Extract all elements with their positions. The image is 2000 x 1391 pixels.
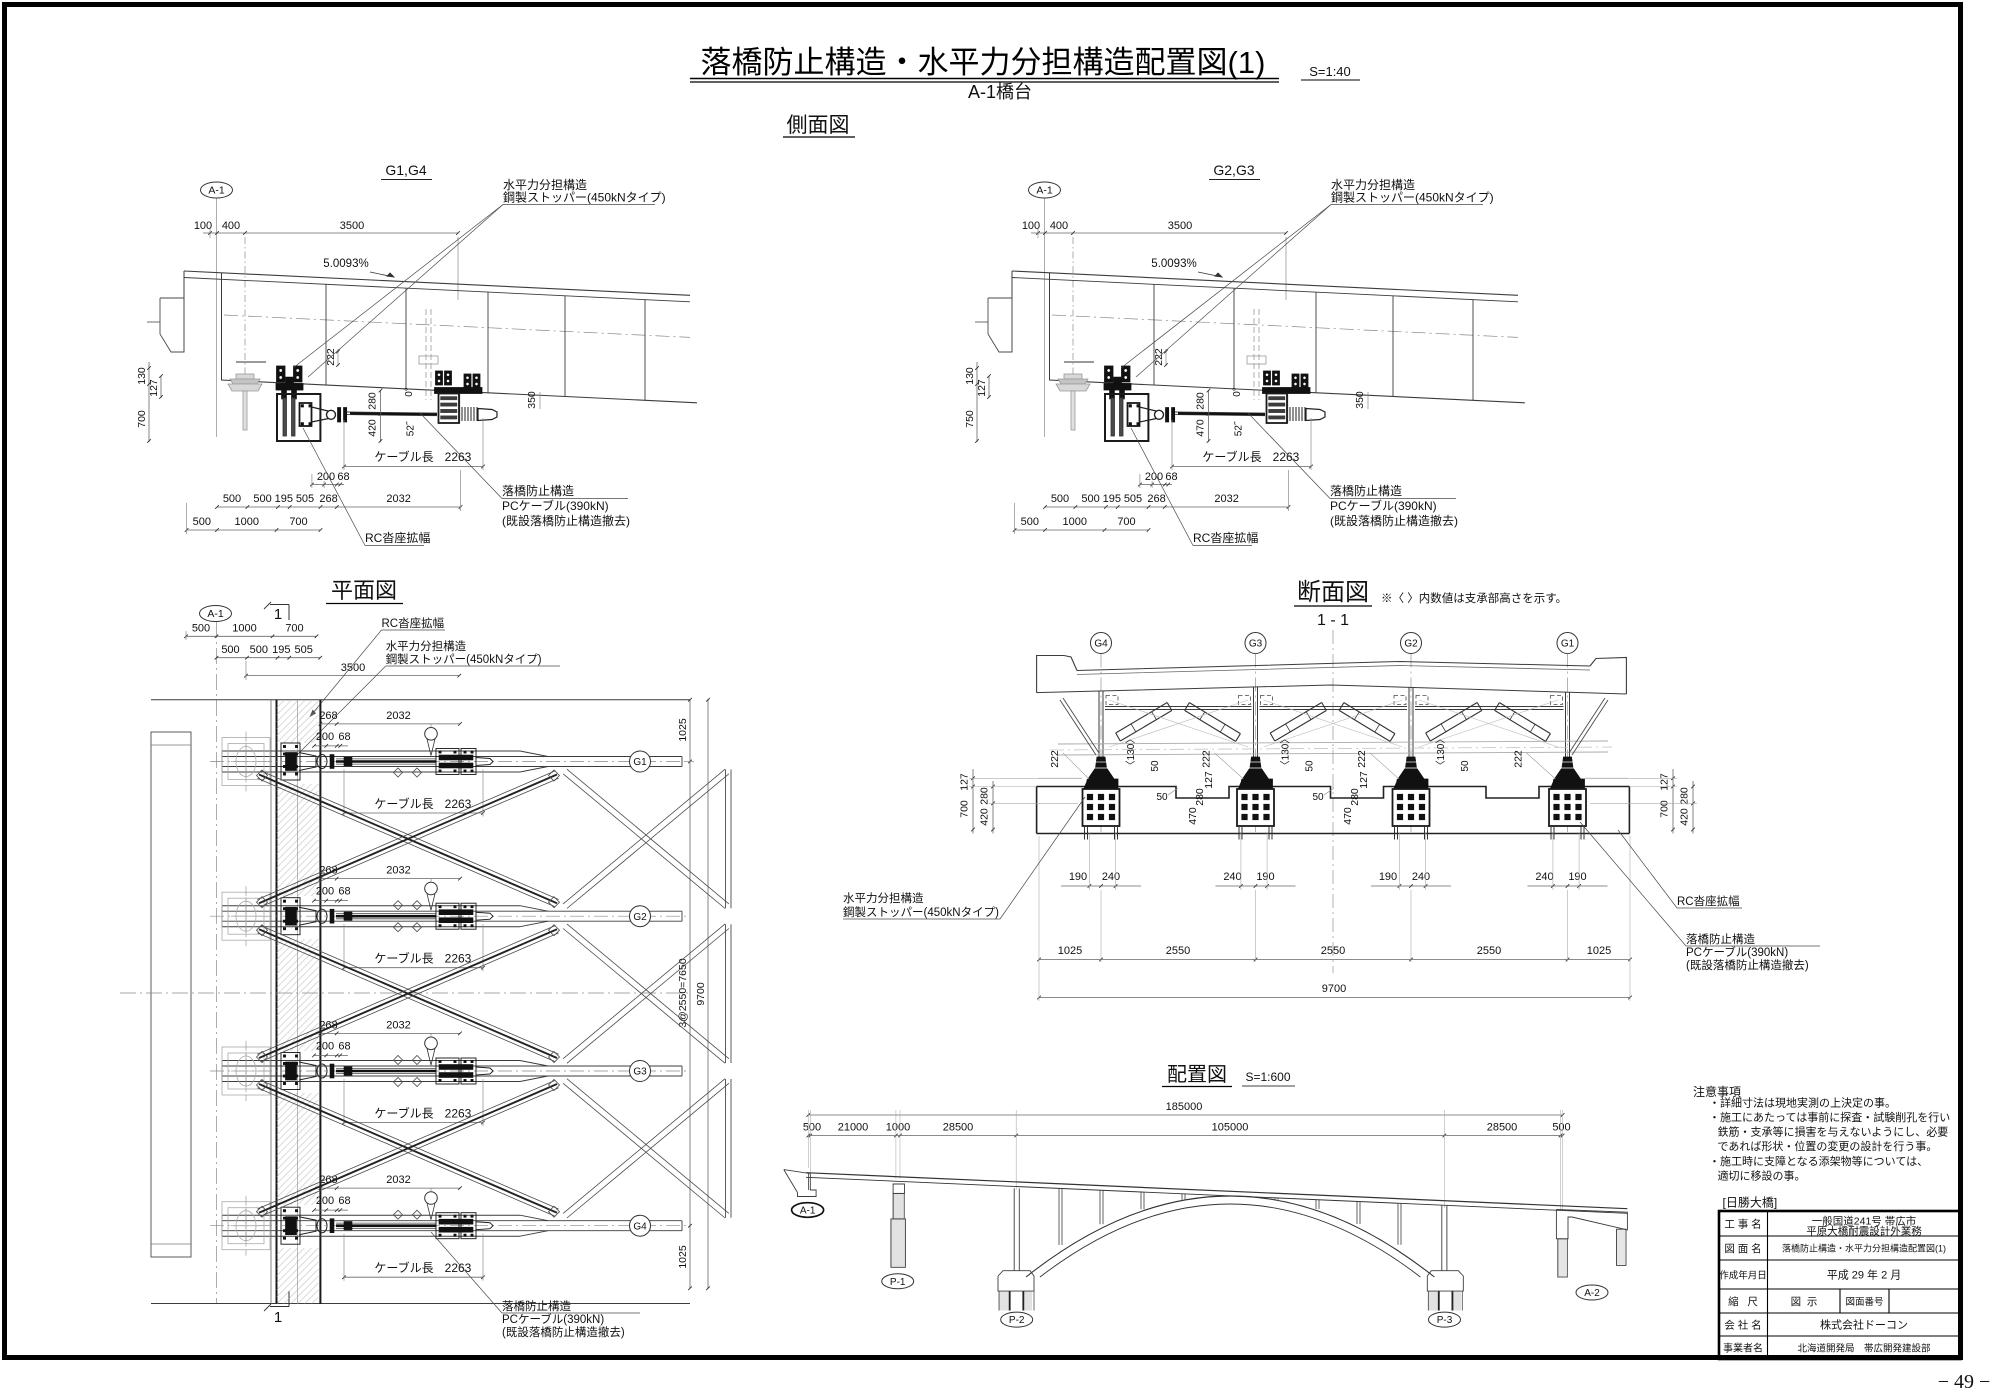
svg-text:適切に移設の事。: 適切に移設の事。 bbox=[1718, 1168, 1806, 1182]
svg-text:A-1: A-1 bbox=[207, 608, 224, 620]
svg-text:A-1: A-1 bbox=[1036, 185, 1053, 197]
svg-text:側面図: 側面図 bbox=[787, 114, 850, 137]
svg-text:50: 50 bbox=[1305, 760, 1316, 772]
svg-text:222: 222 bbox=[1356, 750, 1368, 768]
svg-text:1025: 1025 bbox=[677, 718, 689, 742]
svg-text:落橋防止構造: 落橋防止構造 bbox=[502, 1299, 571, 1313]
svg-text:1025: 1025 bbox=[1058, 945, 1082, 957]
svg-text:G2: G2 bbox=[1404, 639, 1418, 650]
svg-text:190: 190 bbox=[1379, 871, 1397, 883]
svg-text:北海道開発局 帯広開発建設部: 北海道開発局 帯広開発建設部 bbox=[1797, 1343, 1930, 1355]
svg-text:平原大橋耐震設計外業務: 平原大橋耐震設計外業務 bbox=[1806, 1225, 1922, 1238]
svg-text:(既設落橋防止構造撤去): (既設落橋防止構造撤去) bbox=[1686, 958, 1809, 972]
svg-text:470: 470 bbox=[1195, 419, 1207, 437]
svg-text:240: 240 bbox=[1223, 871, 1241, 883]
svg-text:240: 240 bbox=[1535, 871, 1553, 883]
svg-text:PCケーブル(390kN): PCケーブル(390kN) bbox=[502, 498, 609, 513]
svg-text:280: 280 bbox=[1195, 392, 1207, 410]
svg-text:水平力分担構造: 水平力分担構造 bbox=[386, 639, 467, 653]
svg-text:500: 500 bbox=[1552, 1122, 1570, 1134]
svg-text:〈130〉: 〈130〉 bbox=[1125, 734, 1137, 771]
svg-text:200: 200 bbox=[1145, 471, 1163, 483]
svg-text:作成年月日: 作成年月日 bbox=[1719, 1270, 1767, 1282]
svg-text:3500: 3500 bbox=[341, 662, 365, 674]
svg-text:ケーブル長: ケーブル長 bbox=[374, 1106, 433, 1121]
svg-text:200: 200 bbox=[316, 1195, 334, 1207]
svg-text:会 社 名: 会 社 名 bbox=[1724, 1319, 1761, 1332]
svg-text:RC沓座拡幅: RC沓座拡幅 bbox=[1193, 530, 1258, 545]
svg-text:195: 195 bbox=[272, 644, 290, 656]
svg-text:2550: 2550 bbox=[1477, 945, 1501, 957]
svg-text:500: 500 bbox=[253, 493, 271, 505]
svg-text:平成 29 年 2 月: 平成 29 年 2 月 bbox=[1827, 1268, 1902, 1282]
svg-text:50: 50 bbox=[1150, 760, 1161, 772]
svg-text:500: 500 bbox=[193, 516, 211, 528]
svg-text:RC沓座拡幅: RC沓座拡幅 bbox=[382, 616, 445, 630]
svg-text:127: 127 bbox=[1203, 771, 1215, 789]
svg-text:縮 尺: 縮 尺 bbox=[1728, 1295, 1758, 1308]
svg-text:(既設落橋防止構造撤去): (既設落橋防止構造撤去) bbox=[502, 513, 630, 528]
svg-text:落橋防止構造: 落橋防止構造 bbox=[502, 483, 574, 498]
svg-text:0°: 0° bbox=[1232, 387, 1243, 397]
svg-text:2032: 2032 bbox=[386, 710, 410, 722]
svg-text:190: 190 bbox=[1069, 871, 1087, 883]
svg-text:事業者名: 事業者名 bbox=[1723, 1342, 1763, 1355]
svg-text:500: 500 bbox=[221, 644, 239, 656]
svg-text:RC沓座拡幅: RC沓座拡幅 bbox=[1677, 894, 1740, 908]
svg-text:420: 420 bbox=[367, 419, 379, 437]
svg-text:A-2: A-2 bbox=[1584, 1288, 1600, 1299]
svg-text:505: 505 bbox=[1124, 493, 1142, 505]
svg-text:(既設落橋防止構造撤去): (既設落橋防止構造撤去) bbox=[1330, 513, 1458, 528]
svg-text:G1: G1 bbox=[1561, 639, 1575, 650]
svg-text:A-1: A-1 bbox=[208, 185, 225, 197]
svg-text:5.0093%: 5.0093% bbox=[1151, 258, 1196, 270]
svg-text:190: 190 bbox=[1256, 871, 1274, 883]
svg-text:1025: 1025 bbox=[1587, 945, 1611, 957]
svg-text:100: 100 bbox=[194, 220, 212, 232]
svg-text:350: 350 bbox=[526, 391, 538, 409]
svg-text:28500: 28500 bbox=[943, 1122, 974, 1134]
svg-text:G4: G4 bbox=[1094, 639, 1108, 650]
svg-text:52˝: 52˝ bbox=[405, 421, 417, 436]
svg-text:図 面 名: 図 面 名 bbox=[1724, 1242, 1761, 1255]
svg-text:ケーブル長: ケーブル長 bbox=[374, 449, 433, 464]
svg-text:鉄筋・支承等に損害を与えないようにし、必要: 鉄筋・支承等に損害を与えないようにし、必要 bbox=[1718, 1125, 1949, 1139]
svg-text:断面図: 断面図 bbox=[1297, 579, 1369, 606]
svg-text:400: 400 bbox=[222, 220, 240, 232]
svg-text:700: 700 bbox=[1659, 800, 1671, 818]
svg-text:68: 68 bbox=[338, 1041, 350, 1053]
svg-text:100: 100 bbox=[1022, 220, 1040, 232]
svg-text:− 49 −: − 49 − bbox=[1938, 1371, 1991, 1391]
svg-text:700: 700 bbox=[289, 516, 307, 528]
svg-text:1000: 1000 bbox=[886, 1122, 910, 1134]
svg-text:500: 500 bbox=[192, 623, 210, 635]
svg-text:落橋防止構造: 落橋防止構造 bbox=[1330, 483, 1402, 498]
svg-text:0°: 0° bbox=[404, 387, 415, 397]
svg-text:PCケーブル(390kN): PCケーブル(390kN) bbox=[502, 1312, 604, 1326]
svg-text:500: 500 bbox=[250, 644, 268, 656]
svg-text:68: 68 bbox=[338, 886, 350, 898]
svg-text:280: 280 bbox=[1679, 787, 1691, 805]
svg-text:2263: 2263 bbox=[1273, 450, 1300, 464]
svg-text:1 - 1: 1 - 1 bbox=[1317, 612, 1349, 629]
svg-text:2263: 2263 bbox=[445, 450, 472, 464]
svg-text:700: 700 bbox=[1117, 516, 1135, 528]
svg-text:ケーブル長: ケーブル長 bbox=[374, 1260, 433, 1275]
svg-text:500: 500 bbox=[803, 1122, 821, 1134]
svg-text:500: 500 bbox=[1021, 516, 1039, 528]
svg-text:・施工時に支障となる添架物等については、: ・施工時に支障となる添架物等については、 bbox=[1709, 1154, 1928, 1168]
svg-text:G3: G3 bbox=[633, 1067, 647, 1078]
svg-text:68: 68 bbox=[338, 731, 350, 743]
svg-text:1000: 1000 bbox=[232, 623, 256, 635]
svg-text:9700: 9700 bbox=[1322, 983, 1346, 995]
svg-text:68: 68 bbox=[1165, 471, 1177, 483]
svg-text:P-1: P-1 bbox=[890, 1277, 906, 1288]
svg-text:505: 505 bbox=[296, 493, 314, 505]
svg-text:図 示: 図 示 bbox=[1791, 1296, 1818, 1308]
svg-text:52˝: 52˝ bbox=[1233, 421, 1245, 436]
svg-text:268: 268 bbox=[319, 710, 337, 722]
svg-text:700: 700 bbox=[285, 623, 303, 635]
svg-text:2032: 2032 bbox=[386, 865, 410, 877]
svg-text:268: 268 bbox=[1147, 493, 1165, 505]
svg-text:1025: 1025 bbox=[677, 1245, 689, 1269]
svg-text:195: 195 bbox=[1103, 493, 1121, 505]
svg-text:470: 470 bbox=[1187, 807, 1199, 825]
svg-text:200: 200 bbox=[316, 886, 334, 898]
svg-text:68: 68 bbox=[338, 1195, 350, 1207]
svg-text:RC沓座拡幅: RC沓座拡幅 bbox=[365, 530, 430, 545]
svg-text:落橋防止構造・水平力分担構造配置図(1): 落橋防止構造・水平力分担構造配置図(1) bbox=[701, 45, 1266, 80]
svg-text:2550: 2550 bbox=[1166, 945, 1190, 957]
svg-text:50: 50 bbox=[1460, 760, 1471, 772]
svg-text:50: 50 bbox=[1156, 792, 1168, 803]
svg-text:127: 127 bbox=[1659, 773, 1671, 791]
svg-text:222: 222 bbox=[1049, 750, 1061, 768]
svg-text:420: 420 bbox=[1679, 808, 1691, 826]
svg-text:127: 127 bbox=[148, 379, 160, 397]
svg-text:130: 130 bbox=[964, 367, 976, 385]
svg-text:ケーブル長: ケーブル長 bbox=[374, 951, 433, 966]
svg-text:28500: 28500 bbox=[1487, 1122, 1518, 1134]
svg-text:鋼製ストッパー(450kNタイプ): 鋼製ストッパー(450kNタイプ) bbox=[503, 191, 666, 205]
svg-text:1: 1 bbox=[274, 1309, 282, 1326]
svg-text:G1,G4: G1,G4 bbox=[385, 162, 426, 178]
svg-text:P-2: P-2 bbox=[1009, 1315, 1025, 1326]
svg-text:127: 127 bbox=[959, 773, 971, 791]
svg-text:105000: 105000 bbox=[1212, 1122, 1249, 1134]
svg-text:G2: G2 bbox=[633, 912, 647, 923]
svg-text:落橋防止構造・水平力分担構造配置図(1): 落橋防止構造・水平力分担構造配置図(1) bbox=[1782, 1243, 1946, 1254]
svg-text:A-1橋台: A-1橋台 bbox=[968, 82, 1032, 102]
svg-text:[日勝大橋]: [日勝大橋] bbox=[1723, 1195, 1778, 1210]
svg-text:G2,G3: G2,G3 bbox=[1213, 162, 1254, 178]
svg-text:700: 700 bbox=[136, 410, 148, 428]
svg-text:500: 500 bbox=[1051, 493, 1069, 505]
svg-text:G1: G1 bbox=[633, 757, 647, 768]
svg-text:280: 280 bbox=[1194, 788, 1206, 806]
svg-text:S=1:40: S=1:40 bbox=[1309, 64, 1351, 79]
svg-text:505: 505 bbox=[295, 644, 313, 656]
svg-text:750: 750 bbox=[964, 410, 976, 428]
svg-text:9700: 9700 bbox=[695, 982, 707, 1006]
svg-text:3500: 3500 bbox=[340, 220, 364, 232]
svg-text:平面図: 平面図 bbox=[331, 578, 397, 603]
svg-text:280: 280 bbox=[1349, 788, 1361, 806]
svg-text:・詳細寸法は現地実測の上決定の事。: ・詳細寸法は現地実測の上決定の事。 bbox=[1709, 1096, 1896, 1110]
svg-text:240: 240 bbox=[1102, 871, 1120, 883]
svg-text:G4: G4 bbox=[633, 1221, 647, 1232]
svg-text:68: 68 bbox=[337, 471, 349, 483]
svg-text:鋼製ストッパー(450kNタイプ): 鋼製ストッパー(450kNタイプ) bbox=[843, 905, 999, 919]
svg-text:700: 700 bbox=[959, 800, 971, 818]
svg-text:200: 200 bbox=[316, 731, 334, 743]
svg-text:2032: 2032 bbox=[1214, 493, 1238, 505]
svg-text:400: 400 bbox=[1050, 220, 1068, 232]
svg-text:5.0093%: 5.0093% bbox=[323, 258, 368, 270]
svg-text:鋼製ストッパー(450kNタイプ): 鋼製ストッパー(450kNタイプ) bbox=[386, 652, 542, 666]
svg-text:PCケーブル(390kN): PCケーブル(390kN) bbox=[1686, 945, 1788, 959]
svg-text:350: 350 bbox=[1354, 391, 1366, 409]
svg-text:1000: 1000 bbox=[1063, 516, 1087, 528]
svg-text:・施工にあたっては事前に探査・試験削孔を行い: ・施工にあたっては事前に探査・試験削孔を行い bbox=[1709, 1110, 1950, 1124]
svg-text:〈130〉: 〈130〉 bbox=[1280, 734, 1292, 771]
svg-text:図面番号: 図面番号 bbox=[1845, 1296, 1883, 1308]
svg-text:240: 240 bbox=[1412, 871, 1430, 883]
svg-text:2032: 2032 bbox=[386, 1020, 410, 1032]
svg-text:2550: 2550 bbox=[1321, 945, 1345, 957]
svg-text:222: 222 bbox=[1201, 750, 1213, 768]
svg-text:2032: 2032 bbox=[386, 493, 410, 505]
svg-text:280: 280 bbox=[979, 787, 991, 805]
svg-text:落橋防止構造: 落橋防止構造 bbox=[1686, 932, 1755, 946]
svg-text:PCケーブル(390kN): PCケーブル(390kN) bbox=[1330, 498, 1437, 513]
svg-text:P-3: P-3 bbox=[1437, 1315, 1453, 1326]
svg-text:S=1:600: S=1:600 bbox=[1245, 1070, 1290, 1084]
svg-text:21000: 21000 bbox=[838, 1122, 869, 1134]
svg-text:50: 50 bbox=[1312, 792, 1324, 803]
svg-text:222: 222 bbox=[1513, 750, 1525, 768]
svg-text:配置図: 配置図 bbox=[1167, 1064, 1227, 1086]
svg-text:420: 420 bbox=[979, 808, 991, 826]
svg-text:268: 268 bbox=[319, 493, 337, 505]
svg-text:200: 200 bbox=[316, 1041, 334, 1053]
svg-text:※〈 〉内数値は支承部高さを示す。: ※〈 〉内数値は支承部高さを示す。 bbox=[1381, 591, 1567, 605]
svg-text:130: 130 bbox=[136, 367, 148, 385]
svg-text:470: 470 bbox=[1342, 807, 1354, 825]
svg-text:1: 1 bbox=[274, 606, 282, 623]
svg-text:工 事 名: 工 事 名 bbox=[1724, 1218, 1761, 1231]
svg-text:280: 280 bbox=[367, 392, 379, 410]
svg-text:株式会社ドーコン: 株式会社ドーコン bbox=[1820, 1318, 1908, 1332]
svg-text:200: 200 bbox=[317, 471, 335, 483]
svg-text:1000: 1000 bbox=[235, 516, 259, 528]
svg-text:127: 127 bbox=[1358, 771, 1370, 789]
svg-text:ケーブル長: ケーブル長 bbox=[374, 796, 433, 811]
svg-text:3500: 3500 bbox=[1168, 220, 1192, 232]
svg-text:2032: 2032 bbox=[386, 1174, 410, 1186]
svg-text:190: 190 bbox=[1568, 871, 1586, 883]
svg-text:であれば形状・位置の変更の設計を行う事。: であれば形状・位置の変更の設計を行う事。 bbox=[1718, 1139, 1938, 1153]
svg-text:〈130〉: 〈130〉 bbox=[1435, 734, 1447, 771]
svg-text:195: 195 bbox=[275, 493, 293, 505]
svg-text:鋼製ストッパー(450kNタイプ): 鋼製ストッパー(450kNタイプ) bbox=[1331, 191, 1494, 205]
svg-text:ケーブル長: ケーブル長 bbox=[1202, 449, 1261, 464]
svg-text:500: 500 bbox=[1081, 493, 1099, 505]
svg-text:A-1: A-1 bbox=[800, 1206, 816, 1217]
svg-text:500: 500 bbox=[223, 493, 241, 505]
svg-text:G3: G3 bbox=[1249, 639, 1263, 650]
svg-text:127: 127 bbox=[976, 379, 988, 397]
svg-text:185000: 185000 bbox=[1166, 1101, 1203, 1113]
svg-text:水平力分担構造: 水平力分担構造 bbox=[843, 891, 924, 905]
svg-text:(既設落橋防止構造撤去): (既設落橋防止構造撤去) bbox=[502, 1325, 625, 1339]
